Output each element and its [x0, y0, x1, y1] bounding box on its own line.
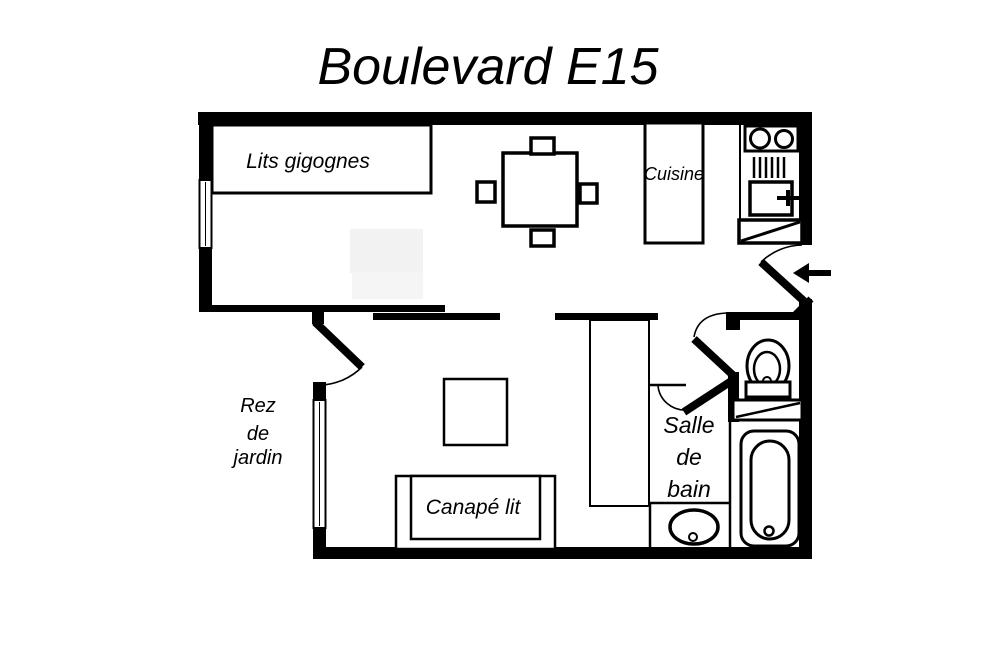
kitchen-appliances: [739, 125, 802, 243]
wall-right-lower: [799, 299, 812, 552]
wardrobe: [590, 320, 649, 506]
kitchen-label: Cuisine: [644, 164, 704, 184]
wall-bedroom-bottom: [199, 305, 445, 312]
wall-left-upper-a: [199, 112, 212, 182]
garden-label-line1: Rez: [240, 395, 276, 417]
toilet: [746, 340, 790, 397]
sofa-bed: Canapé lit: [396, 476, 555, 549]
washbasin-drain: [689, 533, 697, 541]
wall-living-top-left: [373, 313, 500, 320]
bathroom-label-line1: Salle: [663, 412, 714, 438]
cooktop-burner-right: [776, 131, 793, 148]
garden-label-line3: jardin: [231, 447, 283, 469]
wall-living-top-right: [555, 313, 658, 320]
bathtub: [741, 431, 799, 546]
dining-chair-bottom: [531, 230, 554, 246]
vanity-shelf: [733, 400, 802, 420]
floor-plan: Boulevard E15: [0, 0, 1000, 667]
plan-title: Boulevard E15: [317, 38, 659, 96]
entrance-arrow-shaft: [806, 270, 831, 276]
washbasin: [670, 510, 718, 544]
coffee-table: [444, 379, 507, 445]
wall-wc-stub: [726, 312, 740, 330]
floor-plan-canvas: Boulevard E15: [0, 0, 1000, 667]
dining-chair-top: [531, 138, 554, 154]
wall-left-upper-b: [199, 246, 212, 312]
paper-background: [0, 0, 1000, 667]
dining-chair-right: [580, 184, 597, 203]
ghost-furniture: [350, 229, 423, 299]
dining-chair-left: [477, 182, 495, 202]
dining-table: [503, 153, 577, 226]
wall-bottom: [313, 547, 812, 559]
bathroom-label-line3: bain: [667, 476, 710, 502]
toilet-tank: [746, 382, 790, 397]
wall-top: [198, 112, 812, 125]
bathtub-drain: [765, 527, 774, 536]
bathtub-inner: [751, 441, 789, 539]
garden-label-line2: de: [247, 423, 269, 445]
sofa-label: Canapé lit: [426, 496, 522, 519]
bathroom-label-line2: de: [676, 444, 702, 470]
stacking-beds-label: Lits gigognes: [246, 150, 370, 173]
cooktop-burner-left: [751, 129, 770, 148]
